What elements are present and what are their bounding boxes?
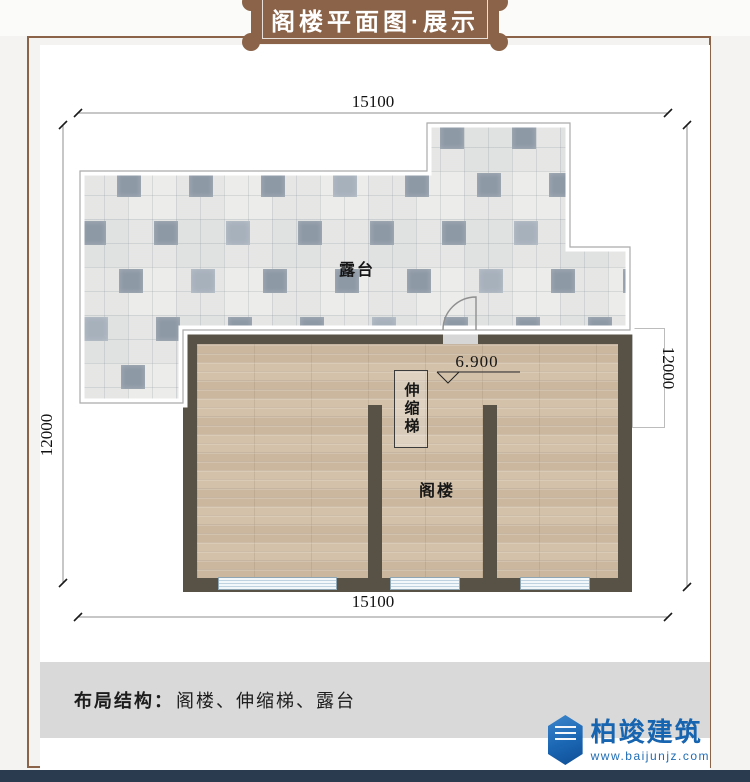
dark-accent-tile [296, 125, 320, 149]
building-logo-icon [548, 715, 583, 765]
dark-accent-tile [117, 173, 141, 197]
bottom-navy-bar [0, 770, 750, 782]
dimension-left: 12000 [37, 414, 57, 457]
brand-name: 柏竣建筑 [591, 717, 703, 747]
dark-accent-tile [333, 173, 357, 197]
dark-accent-tile [226, 221, 250, 245]
dark-accent-tile [621, 173, 645, 197]
dark-accent-tile [80, 125, 104, 149]
dark-accent-tile [405, 173, 429, 197]
dark-accent-tile [584, 125, 608, 149]
dark-accent-tile [407, 269, 431, 293]
brand-block: 柏竣建筑 www.baijunjz.com [548, 712, 710, 768]
dark-accent-tile [370, 221, 394, 245]
dark-accent-tile [442, 221, 466, 245]
dark-accent-tile [84, 317, 108, 341]
dimension-top: 15100 [352, 92, 395, 112]
telescopic-ladder-label: 伸缩梯 [401, 382, 422, 436]
dark-accent-tile [477, 173, 501, 197]
telescopic-ladder-box: 伸缩梯 [394, 370, 428, 448]
floor-plan: 露台 阁楼 6.900 伸缩梯 15100 15100 12000 12000 [40, 45, 710, 662]
dark-accent-tile [549, 173, 573, 197]
dark-accent-tile [368, 125, 392, 149]
dark-accent-tile [121, 365, 145, 389]
interior-wall [368, 405, 382, 592]
attic-label: 阁楼 [419, 477, 455, 501]
title-ribbon: 阁楼平面图·展示 [251, 0, 499, 44]
page-title: 阁楼平面图·展示 [251, 0, 499, 46]
dark-accent-tile [156, 317, 180, 341]
dark-accent-tile [82, 221, 106, 245]
window [218, 577, 337, 590]
layout-structure-label: 布局结构： [74, 691, 174, 711]
dark-accent-tile [551, 269, 575, 293]
dimension-bottom: 15100 [352, 592, 395, 612]
dark-accent-tile [586, 221, 610, 245]
window [520, 577, 590, 590]
dark-accent-tile [440, 125, 464, 149]
dark-accent-tile [263, 269, 287, 293]
brand-website: www.baijunjz.com [591, 749, 710, 763]
dark-accent-tile [119, 269, 143, 293]
dark-accent-tile [514, 221, 538, 245]
level-mark-label: 6.900 [455, 352, 498, 372]
dark-accent-tile [261, 173, 285, 197]
layout-structure-value: 阁楼、伸缩梯、露台 [176, 691, 356, 711]
dark-accent-tile [224, 125, 248, 149]
terrace-label: 露台 [339, 256, 375, 280]
dark-accent-tile [154, 221, 178, 245]
dark-accent-tile [189, 173, 213, 197]
dark-accent-tile [191, 269, 215, 293]
dark-accent-tile [512, 125, 536, 149]
dimension-right: 12000 [658, 347, 678, 390]
dark-accent-tile [298, 221, 322, 245]
layout-structure-text: 布局结构：阁楼、伸缩梯、露台 [74, 687, 356, 713]
door-threshold [443, 330, 478, 344]
window [390, 577, 460, 590]
dark-accent-tile [623, 269, 647, 293]
interior-wall [483, 405, 497, 592]
dark-accent-tile [152, 125, 176, 149]
dark-accent-tile [479, 269, 503, 293]
